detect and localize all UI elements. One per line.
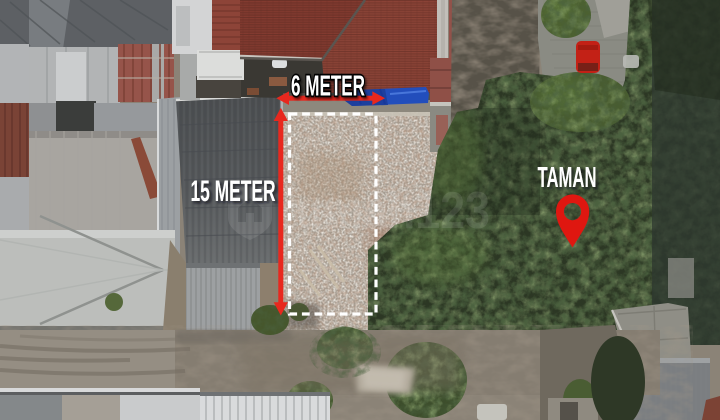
svg-text:6 METER: 6 METER (291, 71, 365, 103)
svg-text:rumah123: rumah123 (278, 182, 490, 240)
svg-text:15 METER: 15 METER (191, 175, 276, 208)
svg-text:TAMAN: TAMAN (538, 162, 597, 194)
